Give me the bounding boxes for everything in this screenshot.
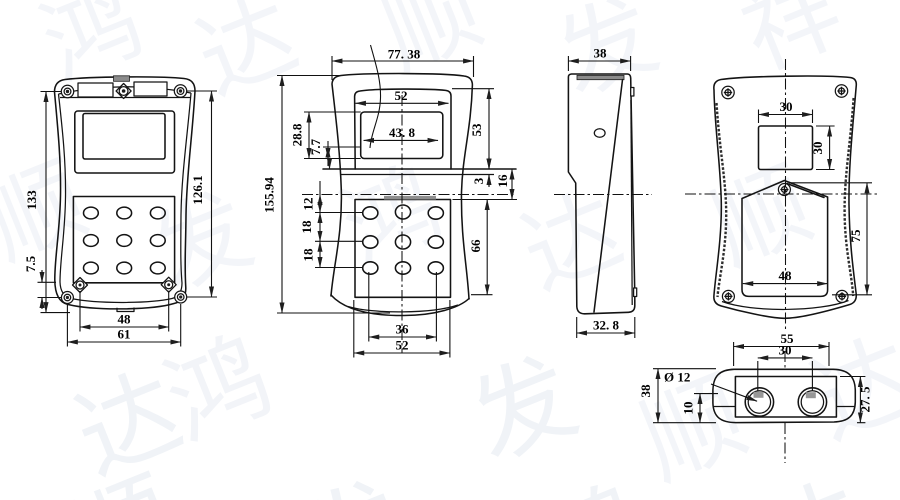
svg-text:10: 10	[681, 402, 696, 415]
svg-text:43. 8: 43. 8	[389, 125, 416, 140]
svg-text:38: 38	[594, 46, 608, 61]
svg-text:18: 18	[301, 248, 316, 262]
svg-text:3: 3	[471, 177, 486, 184]
svg-text:28.8: 28.8	[290, 123, 305, 146]
svg-text:7.7: 7.7	[308, 138, 323, 155]
svg-text:30: 30	[779, 343, 792, 358]
svg-text:48: 48	[779, 268, 793, 283]
svg-text:32. 8: 32. 8	[593, 318, 620, 333]
svg-text:77. 38: 77. 38	[388, 47, 421, 62]
svg-text:133: 133	[24, 190, 39, 210]
svg-text:12: 12	[301, 198, 316, 211]
svg-text:27. 5: 27. 5	[858, 386, 873, 413]
svg-text:16: 16	[495, 174, 510, 188]
svg-text:18: 18	[299, 220, 314, 234]
svg-text:Ø 12: Ø 12	[664, 370, 690, 385]
svg-text:126.1: 126.1	[190, 175, 205, 204]
svg-text:48: 48	[118, 312, 132, 327]
svg-text:52: 52	[395, 88, 408, 103]
svg-text:36: 36	[396, 322, 410, 337]
svg-text:52: 52	[396, 338, 409, 353]
svg-text:30: 30	[810, 142, 825, 155]
svg-text:61: 61	[118, 327, 131, 342]
svg-text:7.5: 7.5	[23, 255, 38, 272]
svg-text:75: 75	[848, 229, 863, 243]
svg-text:38: 38	[638, 384, 653, 398]
svg-text:155.94: 155.94	[262, 177, 277, 213]
svg-text:30: 30	[780, 99, 793, 114]
svg-text:66: 66	[468, 239, 483, 253]
svg-text:53: 53	[469, 123, 484, 137]
